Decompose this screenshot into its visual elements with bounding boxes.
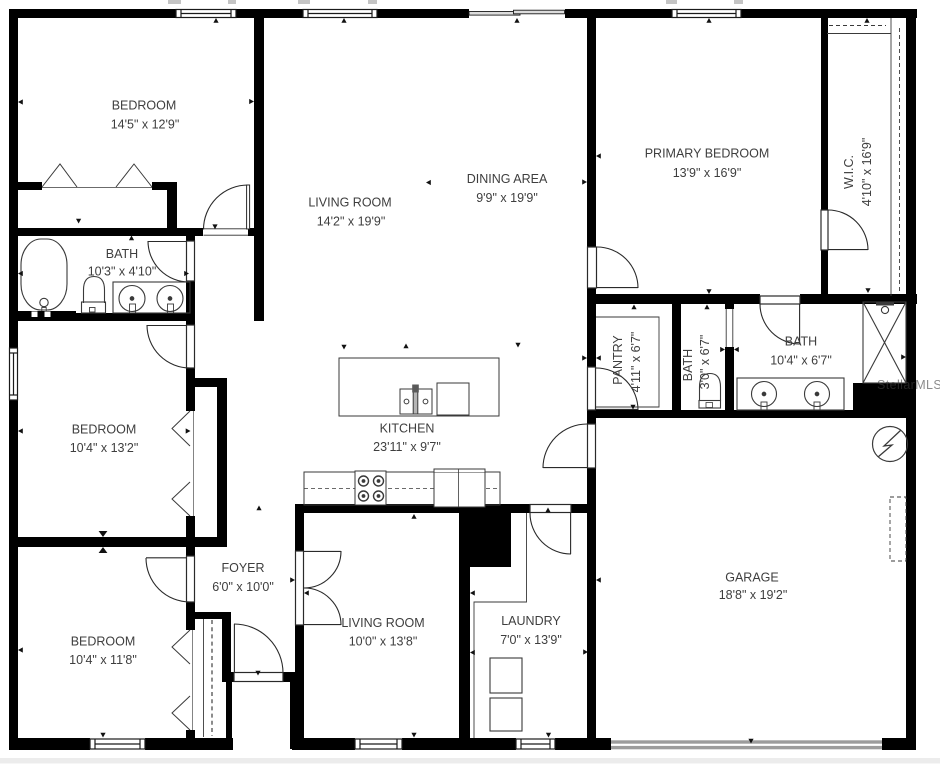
svg-text:14'5" x 12'9": 14'5" x 12'9": [111, 118, 180, 132]
svg-text:3'0" x 6'7": 3'0" x 6'7": [698, 335, 712, 390]
svg-text:13'9" x 16'9": 13'9" x 16'9": [673, 166, 742, 180]
svg-text:9'9" x 19'9": 9'9" x 19'9": [476, 191, 538, 205]
svg-text:W.I.C.: W.I.C.: [842, 155, 856, 189]
svg-text:BATH: BATH: [785, 335, 817, 349]
svg-text:BATH: BATH: [681, 349, 695, 381]
svg-text:14'2" x 19'9": 14'2" x 19'9": [317, 215, 386, 229]
svg-text:BEDROOM: BEDROOM: [71, 635, 136, 649]
svg-text:23'11" x 9'7": 23'11" x 9'7": [373, 440, 441, 454]
svg-text:4'10" x 16'9": 4'10" x 16'9": [860, 138, 874, 207]
svg-text:10'3" x 4'10": 10'3" x 4'10": [88, 265, 157, 279]
svg-text:DINING AREA: DINING AREA: [467, 172, 548, 186]
svg-text:6'0" x 10'0": 6'0" x 10'0": [212, 580, 274, 594]
svg-text:10'4" x 13'2": 10'4" x 13'2": [70, 441, 139, 455]
svg-text:KITCHEN: KITCHEN: [380, 422, 435, 436]
svg-text:PANTRY: PANTRY: [611, 335, 625, 385]
svg-text:LAUNDRY: LAUNDRY: [501, 614, 561, 628]
svg-text:10'0" x 13'8": 10'0" x 13'8": [349, 635, 418, 649]
svg-text:10'4" x 11'8": 10'4" x 11'8": [69, 653, 137, 667]
svg-text:10'4" x 6'7": 10'4" x 6'7": [770, 354, 832, 368]
svg-text:LIVING ROOM: LIVING ROOM: [341, 616, 424, 630]
svg-text:FOYER: FOYER: [221, 561, 264, 575]
svg-text:18'8" x 19'2": 18'8" x 19'2": [719, 588, 788, 602]
svg-text:LIVING ROOM: LIVING ROOM: [308, 196, 391, 210]
svg-text:PRIMARY BEDROOM: PRIMARY BEDROOM: [645, 147, 770, 161]
svg-text:GARAGE: GARAGE: [725, 571, 779, 585]
svg-text:4'11" x 6'7": 4'11" x 6'7": [629, 332, 643, 393]
svg-text:BEDROOM: BEDROOM: [72, 423, 137, 437]
svg-text:StellarMLS: StellarMLS: [877, 378, 940, 392]
svg-text:BEDROOM: BEDROOM: [112, 99, 177, 113]
svg-text:BATH: BATH: [106, 247, 138, 261]
svg-text:7'0" x 13'9": 7'0" x 13'9": [500, 633, 562, 647]
